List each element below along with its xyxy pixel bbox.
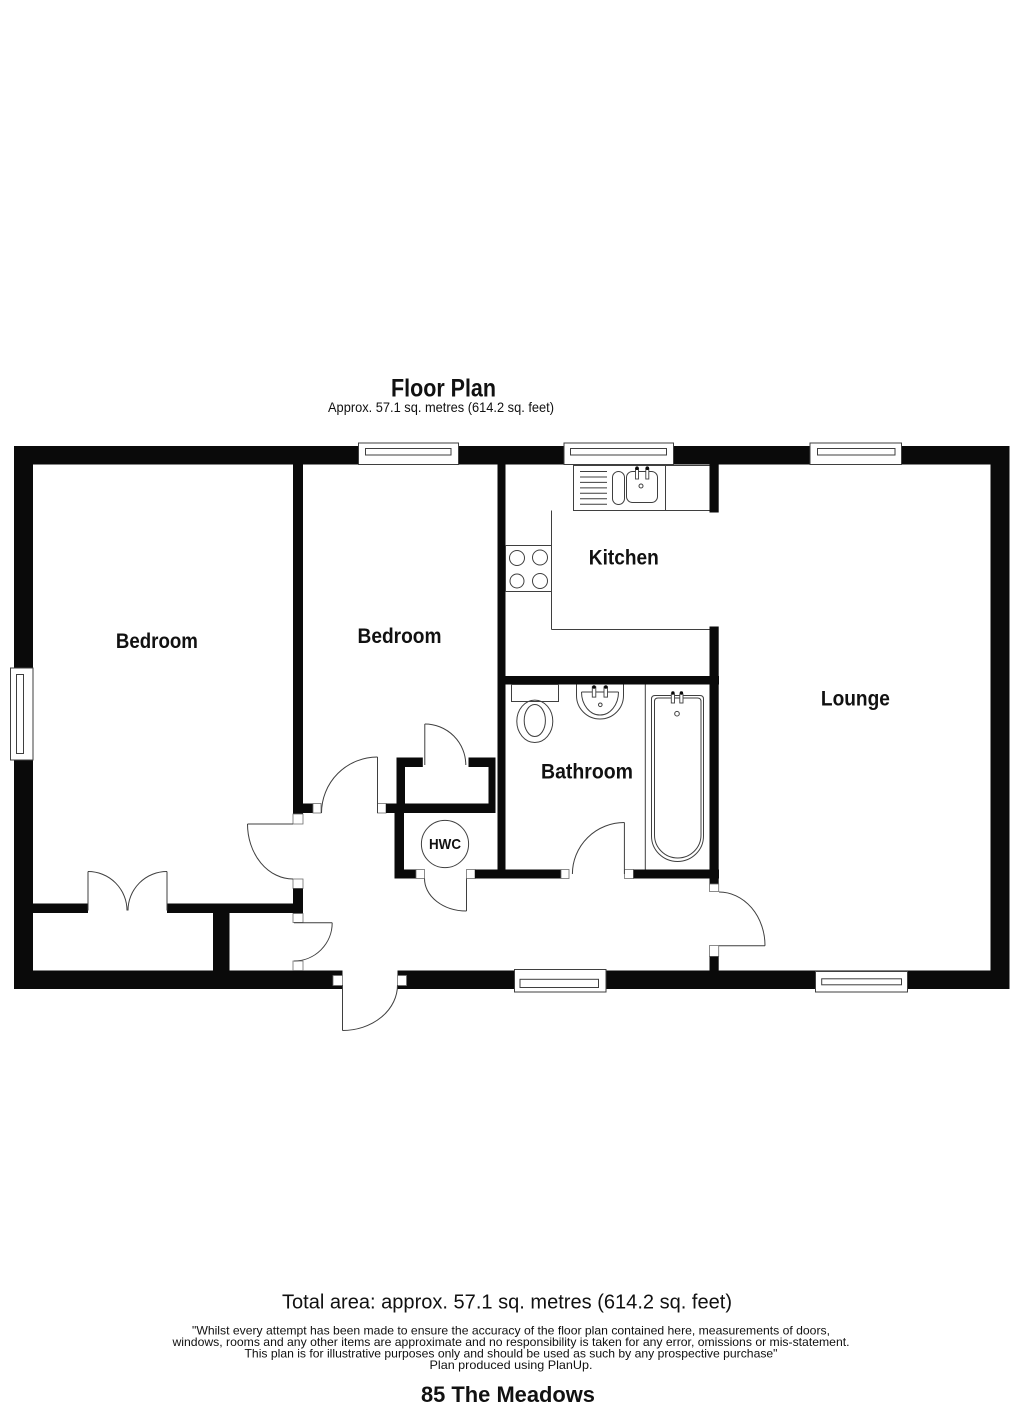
svg-text:Approx. 57.1 sq. metres (614.2: Approx. 57.1 sq. metres (614.2 sq. feet) <box>328 400 554 415</box>
svg-text:85 The Meadows: 85 The Meadows <box>421 1382 595 1407</box>
svg-text:Floor Plan: Floor Plan <box>391 375 496 403</box>
svg-text:Kitchen: Kitchen <box>589 546 659 570</box>
svg-text:Lounge: Lounge <box>821 687 890 711</box>
svg-text:Plan produced using PlanUp.: Plan produced using PlanUp. <box>430 1358 593 1372</box>
svg-text:Bedroom: Bedroom <box>358 624 442 648</box>
svg-text:HWC: HWC <box>429 836 461 853</box>
svg-text:Bedroom: Bedroom <box>116 629 198 653</box>
svg-text:Bathroom: Bathroom <box>541 760 633 784</box>
svg-text:Total area: approx. 57.1 sq. m: Total area: approx. 57.1 sq. metres (614… <box>282 1291 732 1314</box>
